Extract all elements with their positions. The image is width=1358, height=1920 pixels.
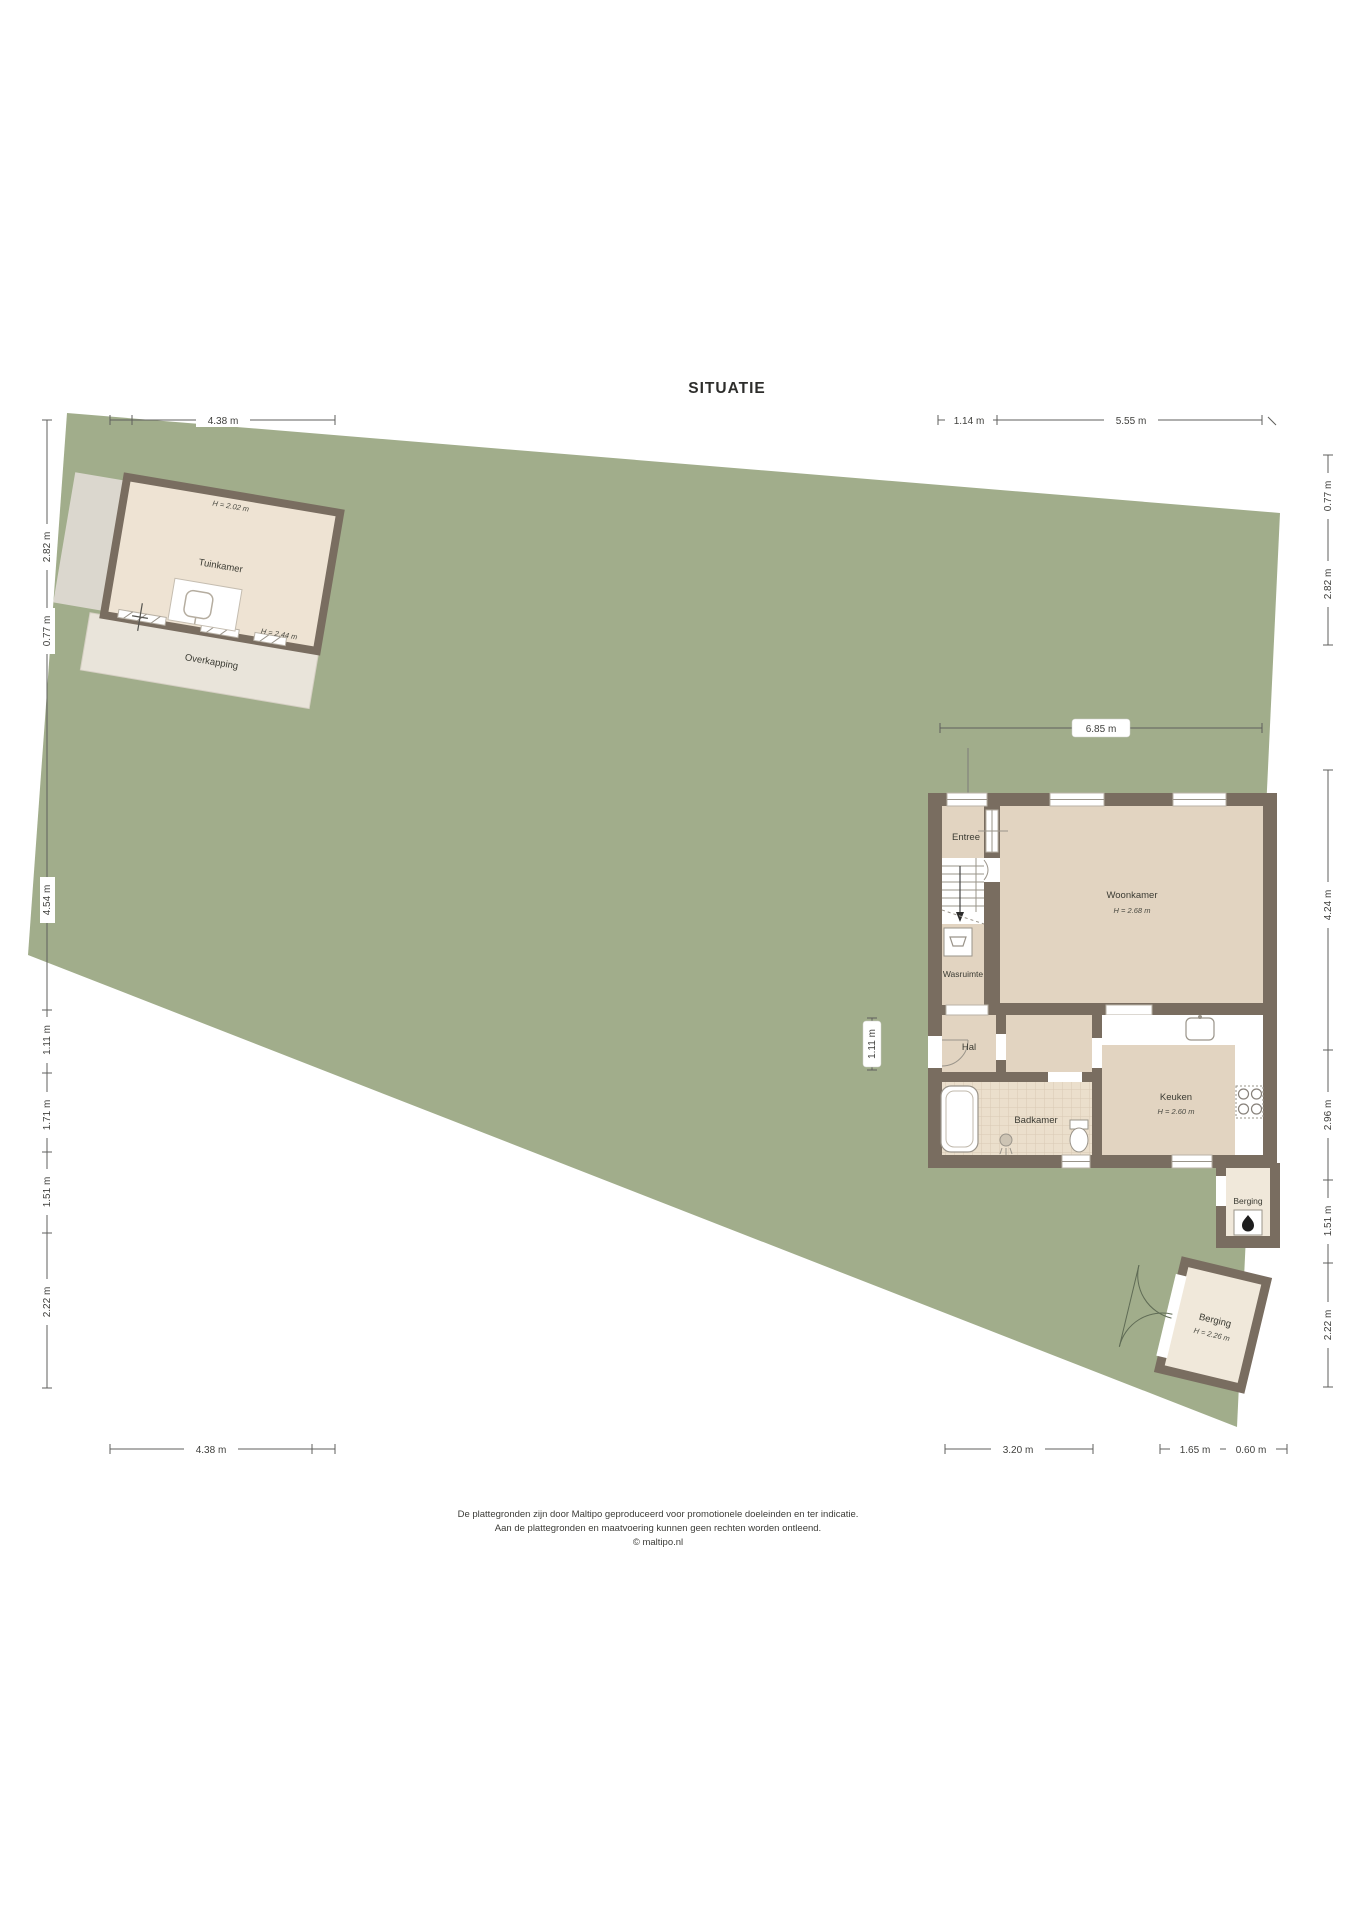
berging-attached-label: Berging: [1233, 1196, 1263, 1206]
dim-label: 1.14 m: [954, 416, 985, 427]
dim-left-chain: 2.82 m 0.77 m 4.54 m 1.11 m 1.71 m 1.51 …: [40, 420, 55, 1388]
dim-label: 4.38 m: [196, 1445, 227, 1456]
keuken-label: Keuken: [1160, 1092, 1192, 1103]
dim-label: 2.82 m: [1323, 569, 1334, 600]
stove-icon: [1236, 1086, 1263, 1118]
door-bottom-keuken: [1172, 1155, 1212, 1168]
door-badkamer: [1048, 1072, 1082, 1082]
footer-line-2: Aan de plattegronden en maatvoering kunn…: [495, 1523, 821, 1534]
woonkamer-room: [1000, 806, 1263, 1003]
dim-label: 4.54 m: [42, 885, 53, 916]
window-top-woonkamer-1: [1050, 793, 1104, 806]
footer-line-3: © maltipo.nl: [633, 1537, 683, 1548]
dim-label: 2.82 m: [42, 532, 53, 563]
keuken-height-label: H = 2.60 m: [1158, 1107, 1195, 1116]
wasruimte-label: Wasruimte: [943, 969, 984, 979]
door-berging-attached: [1216, 1176, 1226, 1206]
dim-label: 2.22 m: [1323, 1310, 1334, 1341]
toilet-icon: [1070, 1120, 1088, 1152]
floorplan-canvas: SITUATIE H = 2.02 m Tuinkamer H = 2.44 m: [0, 0, 1358, 1920]
wall-badkamer-keuken: [1092, 1015, 1102, 1155]
woonkamer-label: Woonkamer: [1106, 890, 1157, 901]
situatie-floorplan-page: SITUATIE H = 2.02 m Tuinkamer H = 2.44 m: [0, 0, 1358, 1920]
dim-label: 6.85 m: [1086, 724, 1117, 735]
page-title: SITUATIE: [688, 380, 765, 397]
window-top-woonkamer-2: [1173, 793, 1226, 806]
dim-label: 1.51 m: [42, 1177, 53, 1208]
window-woonkamer-keuken: [1106, 1005, 1152, 1015]
wall-woonkamer-hal: [942, 1005, 1263, 1015]
dim-label: 0.60 m: [1236, 1445, 1267, 1456]
dim-label: 0.77 m: [1323, 481, 1334, 512]
door-keuken: [1092, 1038, 1102, 1068]
window-wasruimte-hal: [946, 1005, 988, 1015]
dim-label: 3.20 m: [1003, 1445, 1034, 1456]
dim-label: 0.77 m: [42, 616, 53, 647]
dim-label: 1.11 m: [867, 1029, 878, 1059]
dim-label: 2.96 m: [1323, 1100, 1334, 1131]
footer-line-1: De plattegronden zijn door Maltipo gepro…: [458, 1509, 859, 1520]
bathtub-icon: [941, 1086, 978, 1152]
washer-icon: [944, 928, 972, 956]
dim-label: 4.38 m: [208, 416, 239, 427]
kitchen-counter-right: [1235, 1015, 1263, 1155]
dim-top-right: 1.14 m 5.55 m: [938, 412, 1276, 427]
dim-label: 1.51 m: [1323, 1206, 1334, 1237]
dim-label: 1.65 m: [1180, 1445, 1211, 1456]
dim-label: 5.55 m: [1116, 416, 1147, 427]
woonkamer-height-label: H = 2.68 m: [1114, 906, 1151, 915]
kitchen-sink-icon: [1186, 1015, 1214, 1040]
dim-entrance-width: 1.11 m: [863, 1018, 881, 1070]
dim-label: 4.24 m: [1323, 890, 1334, 921]
dim-right-chain: 0.77 m 2.82 m 4.24 m 2.96 m 1.51 m 2.22 …: [1321, 455, 1336, 1387]
door-entree: [984, 858, 1000, 882]
footer-disclaimer: De plattegronden zijn door Maltipo gepro…: [458, 1509, 859, 1548]
dim-label: 1.71 m: [42, 1100, 53, 1131]
dim-label: 2.22 m: [42, 1287, 53, 1318]
dim-bottom-left: 4.38 m: [110, 1441, 335, 1456]
boiler-icon: [1234, 1210, 1262, 1235]
dim-label: 1.11 m: [42, 1025, 53, 1055]
window-top-entree: [947, 793, 987, 806]
hal-label: Hal: [962, 1042, 976, 1053]
window-bottom-badkamer: [1062, 1155, 1090, 1168]
dim-bottom-right: 3.20 m 1.65 m 0.60 m: [945, 1441, 1287, 1456]
entree-label: Entree: [952, 832, 980, 843]
door-hal: [996, 1034, 1006, 1060]
badkamer-label: Badkamer: [1014, 1115, 1057, 1126]
